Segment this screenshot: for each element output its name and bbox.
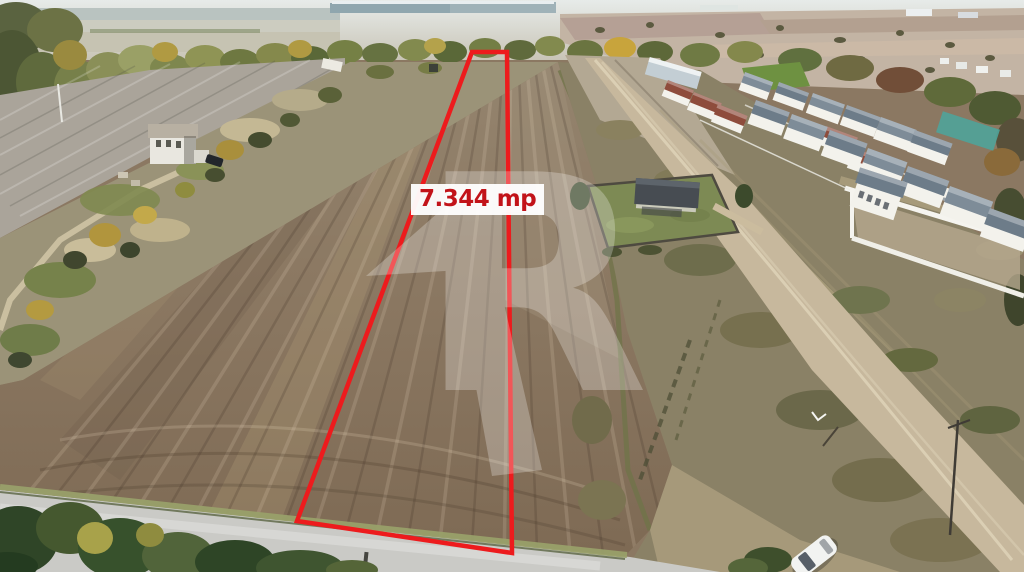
photo-scene — [0, 0, 1024, 572]
tractor — [429, 64, 438, 72]
aerial-photo: R 7.344 mp — [0, 0, 1024, 572]
area-label: 7.344 mp — [411, 184, 544, 215]
